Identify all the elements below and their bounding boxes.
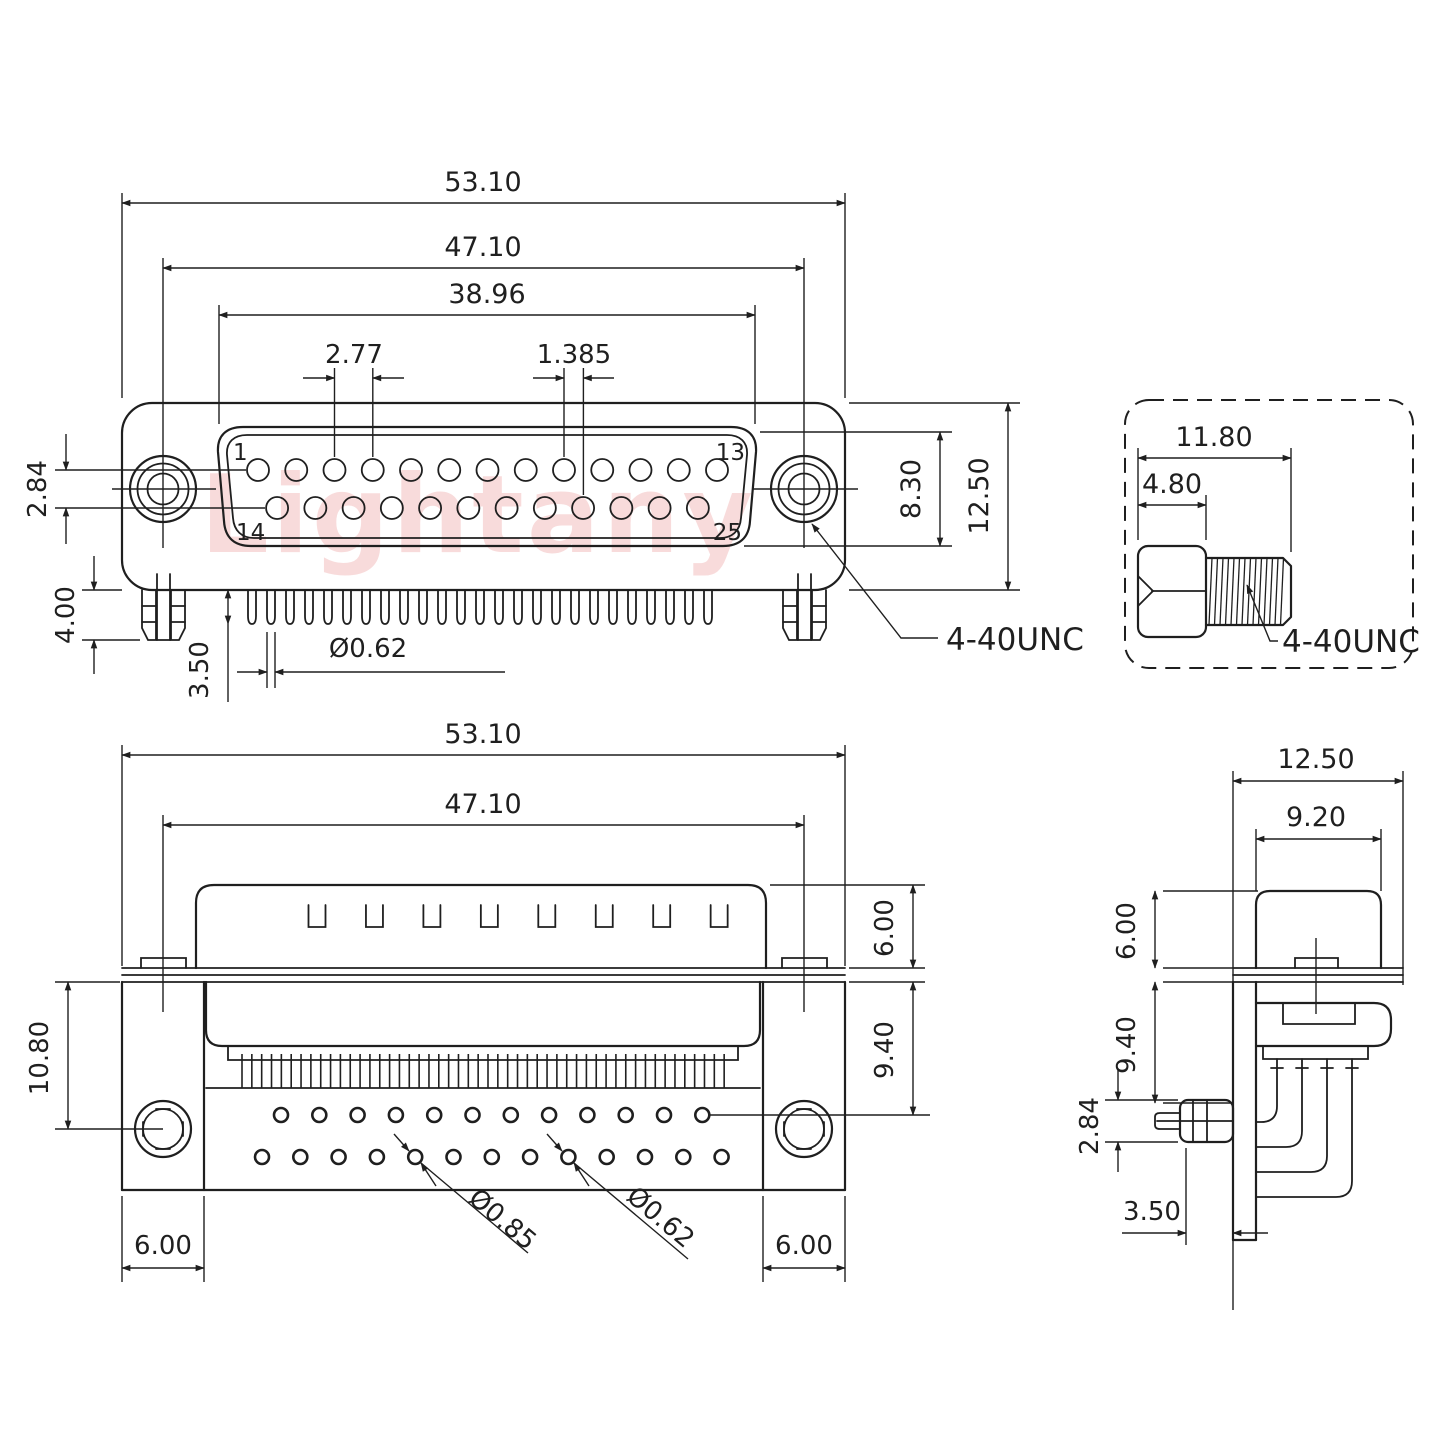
front-boardlock-right [783, 574, 826, 640]
side-view: 12.50 9.20 6.00 9.40 2.84 3.50 [1075, 744, 1403, 1310]
dim-rear-depth: 9.40 [870, 1021, 900, 1079]
rear-shell-slots [309, 905, 728, 927]
rear-hole-row-top [274, 1108, 709, 1122]
rear-dimensions: 53.10 47.10 6.00 9.40 10.80 6.00 6.00 [25, 719, 930, 1282]
dim-front-total-width: 53.10 [444, 167, 521, 198]
dim-front-lock-length: 4.00 [51, 586, 81, 644]
dim-rear-shell-height: 6.00 [870, 899, 900, 957]
front-view: 1 13 14 25 53.10 [23, 167, 1084, 702]
dim-rear-small-hole: Ø0.62 [620, 1181, 699, 1254]
side-dimensions: 12.50 9.20 6.00 9.40 2.84 3.50 [1075, 744, 1403, 1310]
side-bent-pins [1256, 1059, 1358, 1197]
dim-screw-head-length: 4.80 [1142, 469, 1202, 500]
rear-brackets [122, 982, 845, 1190]
dim-front-shell-height: 12.50 [964, 457, 995, 534]
dim-front-pin-exit: 3.50 [185, 641, 215, 699]
front-solder-pins [248, 590, 712, 624]
front-boardlock-left [142, 574, 185, 640]
dim-front-half-pitch: 1.385 [537, 340, 611, 370]
dim-rear-left-bracket: 6.00 [134, 1231, 192, 1261]
dim-side-total-depth: 12.50 [1277, 744, 1354, 775]
rear-hole-row-bottom [255, 1150, 729, 1164]
side-bracket [1233, 982, 1256, 1240]
dim-side-shell-height: 6.00 [1112, 902, 1142, 960]
dim-front-face-height: 8.30 [896, 459, 927, 519]
dim-front-pin-diameter: Ø0.62 [329, 634, 407, 664]
watermark-text: Lightany [200, 453, 756, 578]
rear-view: 53.10 47.10 6.00 9.40 10.80 6.00 6.00 [25, 719, 930, 1282]
dim-side-pin-offset: 3.50 [1123, 1197, 1181, 1227]
side-shell-outline [1256, 891, 1381, 968]
pin-number-13: 13 [716, 440, 745, 466]
dim-rear-mount-spacing: 47.10 [444, 789, 521, 820]
screw-drawing [1138, 546, 1291, 637]
dim-rear-hole-drop: 10.80 [25, 1021, 55, 1095]
dim-rear-large-hole: Ø0.85 [462, 1183, 541, 1256]
rear-housing [206, 982, 760, 1046]
callout-screw-thread: 4-40UNC [1282, 624, 1420, 660]
screw-thread-hatching [1209, 558, 1284, 625]
dim-rear-total-width: 53.10 [444, 719, 521, 750]
dim-front-face-width: 38.96 [448, 279, 525, 310]
pin-number-14: 14 [236, 520, 265, 546]
rear-flange-plate [122, 958, 845, 982]
front-screw-hole-right [752, 432, 858, 548]
dim-screw-total-length: 11.80 [1175, 422, 1252, 453]
dim-front-mount-spacing: 47.10 [444, 232, 521, 263]
dim-rear-right-bracket: 6.00 [775, 1231, 833, 1261]
rear-mount-hole-right [776, 1101, 832, 1157]
connector-drawing: Lightany 1 13 14 25 [0, 0, 1440, 1440]
dim-side-shell-depth: 9.20 [1286, 802, 1346, 833]
dim-side-rear-depth: 9.40 [1112, 1016, 1142, 1074]
side-housing-detail [1283, 1003, 1355, 1024]
screw-detail-view: 11.80 4.80 4-40UNC [1125, 400, 1420, 668]
pin-number-1: 1 [233, 440, 248, 466]
side-housing-step [1263, 1046, 1368, 1059]
side-boardlock-clip [1155, 1100, 1233, 1142]
dim-front-pin-pitch: 2.77 [325, 340, 383, 370]
dim-front-row-gap: 2.84 [23, 460, 53, 518]
dim-side-clip-height: 2.84 [1075, 1097, 1105, 1155]
pin-number-25: 25 [713, 520, 742, 546]
rear-housing-step [228, 1046, 738, 1060]
callout-front-thread: 4-40UNC [946, 622, 1084, 658]
